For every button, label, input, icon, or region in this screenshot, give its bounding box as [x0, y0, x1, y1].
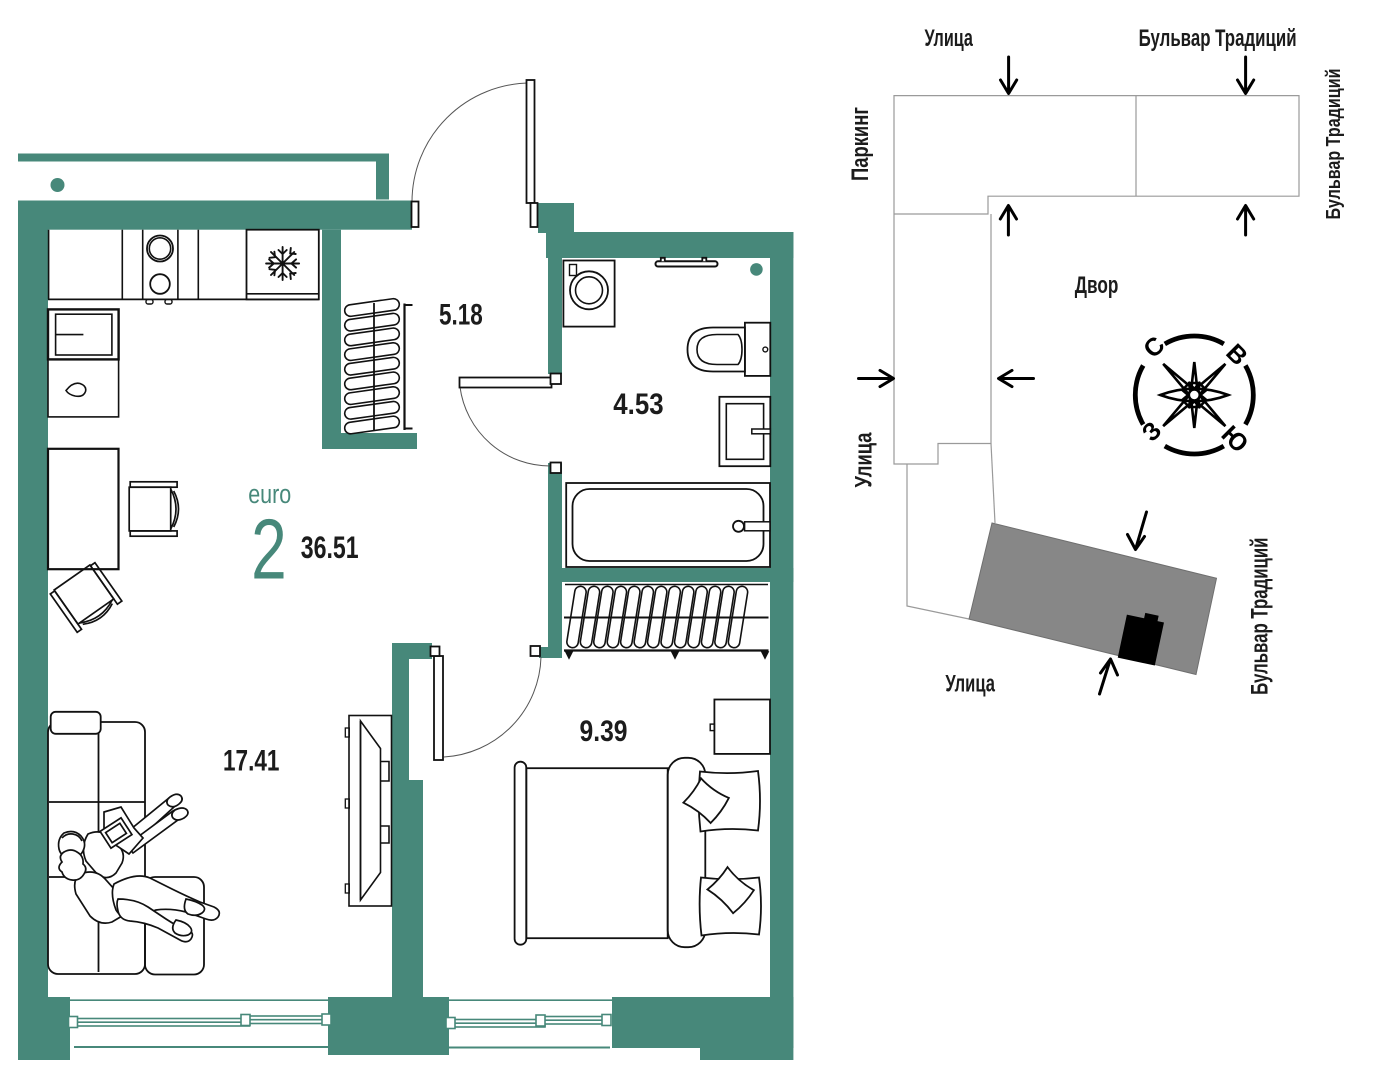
svg-text:Бульвар Традиций: Бульвар Традиций [1139, 25, 1297, 52]
svg-text:36.51: 36.51 [301, 529, 359, 565]
svg-text:Двор: Двор [1075, 272, 1119, 299]
svg-text:Улица: Улица [925, 25, 974, 52]
svg-text:9.39: 9.39 [580, 715, 628, 748]
svg-text:Паркинг: Паркинг [847, 107, 874, 181]
svg-text:Улица: Улица [851, 432, 878, 487]
svg-text:5.18: 5.18 [439, 298, 483, 331]
svg-text:Бульвар Традиций: Бульвар Традиций [1247, 538, 1274, 695]
svg-text:2: 2 [251, 503, 287, 598]
svg-text:Бульвар Традиций: Бульвар Традиций [1322, 69, 1345, 220]
svg-text:17.41: 17.41 [223, 745, 279, 778]
svg-text:Улица: Улица [945, 671, 995, 698]
svg-text:4.53: 4.53 [613, 388, 663, 421]
